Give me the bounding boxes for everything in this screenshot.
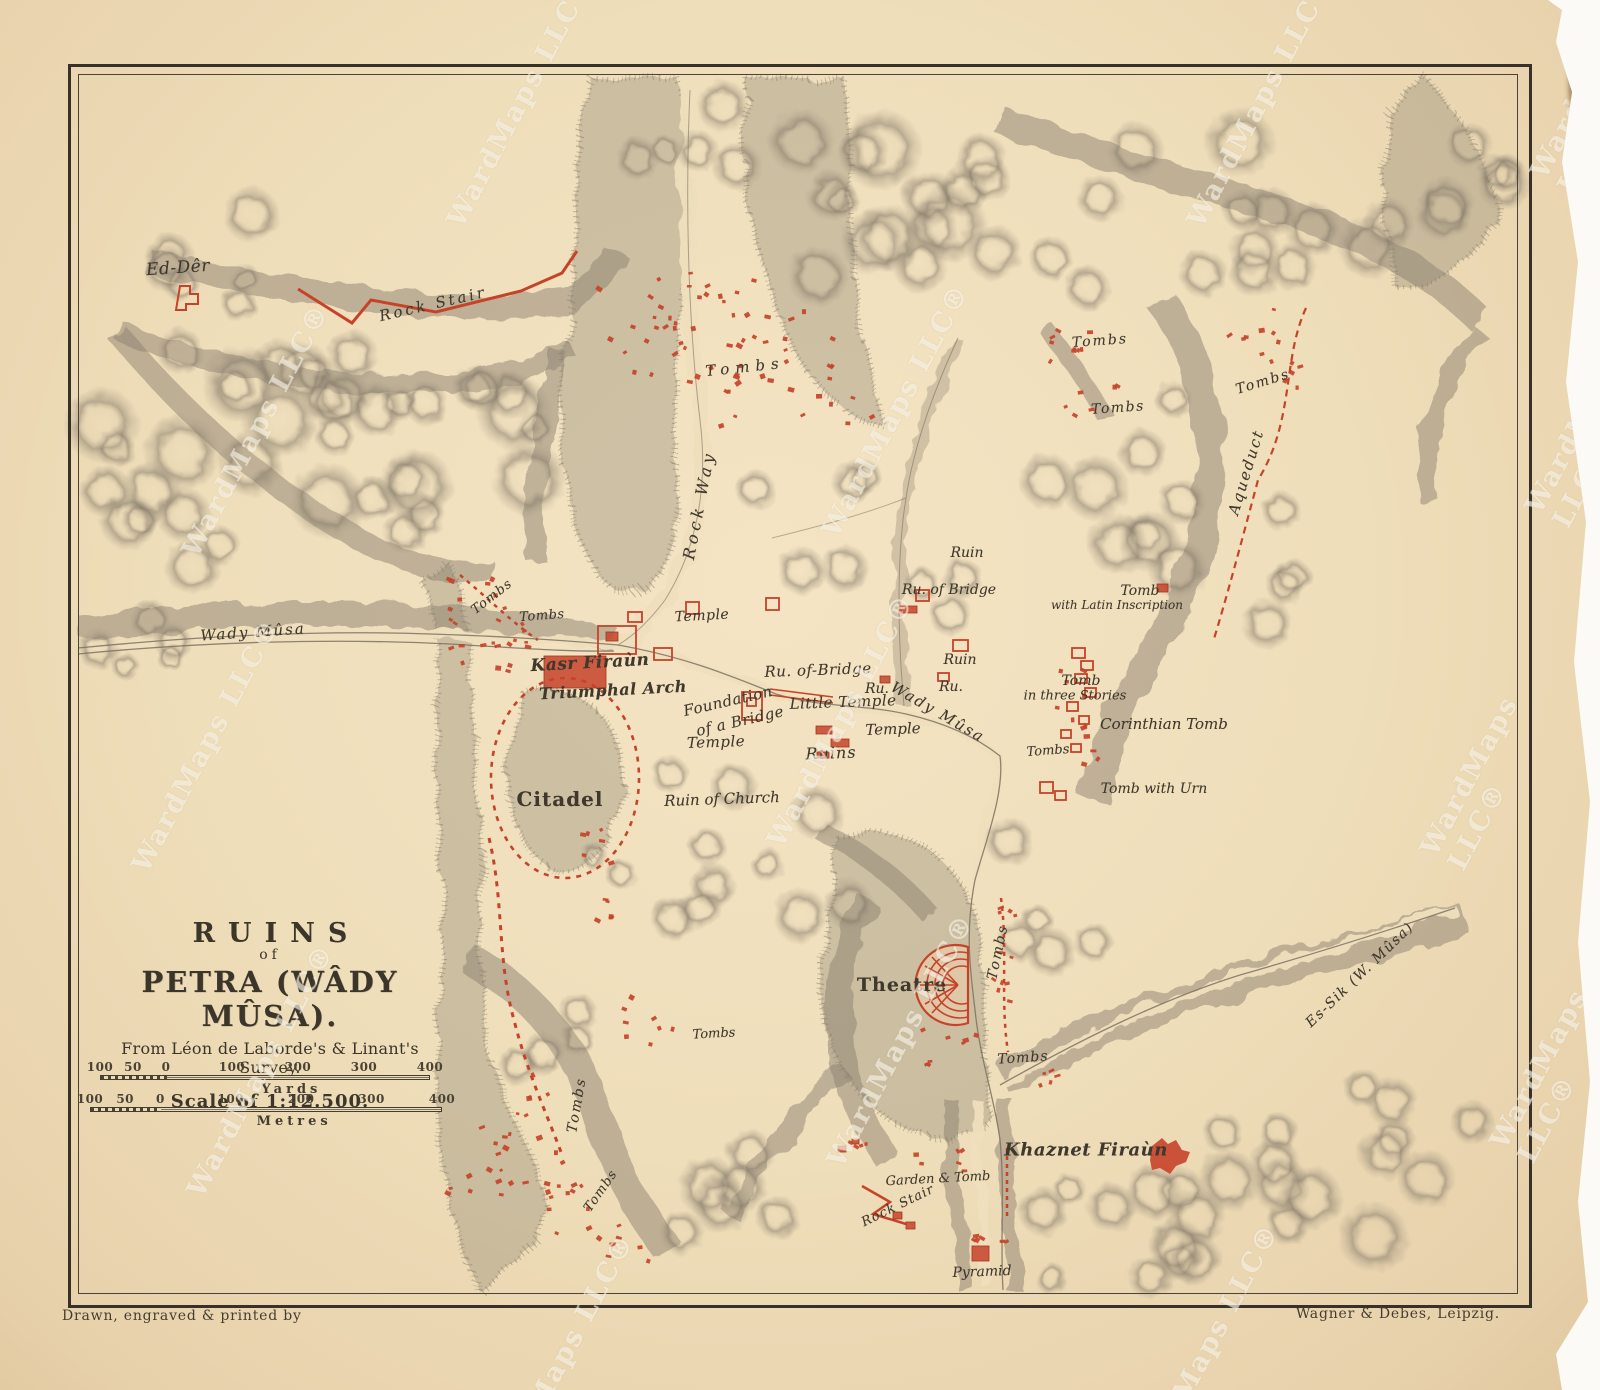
- map-label: in three Stories: [1024, 689, 1127, 704]
- scale-tick: 200: [285, 1060, 312, 1074]
- hill-rosette: [77, 628, 120, 671]
- tomb-dot: [1013, 914, 1017, 918]
- scale-tick: 50: [124, 1060, 142, 1074]
- hill-rosette: [1259, 1112, 1299, 1152]
- tomb-dot: [1083, 734, 1090, 739]
- scale-tick: 0: [156, 1092, 165, 1106]
- hill-rosette: [1159, 478, 1207, 526]
- tomb-dot: [816, 394, 822, 399]
- scale-tick: 0: [162, 1060, 171, 1074]
- tomb-dot: [524, 1113, 529, 1118]
- map-label: Ru.: [939, 679, 963, 695]
- tomb-dot: [492, 641, 495, 644]
- tomb-dot: [959, 1148, 965, 1154]
- hill-rosette: [1204, 107, 1275, 178]
- hill-rosette: [837, 127, 890, 180]
- hill-rosette: [776, 546, 827, 597]
- hill-rosette: [212, 364, 256, 408]
- scale-tick: 100: [77, 1092, 104, 1106]
- hill-rosette: [1357, 1126, 1412, 1181]
- ruin-footprint: [606, 632, 618, 641]
- map-label: Tombs: [519, 607, 565, 625]
- hill-rosette: [696, 80, 750, 134]
- tomb-dot: [507, 663, 513, 668]
- tomb-dot: [1226, 332, 1233, 338]
- tomb-dot: [536, 1134, 544, 1141]
- tomb-dot: [628, 994, 635, 1001]
- tomb-dot: [621, 1006, 627, 1011]
- tomb-dot: [767, 378, 774, 383]
- tomb-dot: [1297, 364, 1303, 369]
- hill-rosette: [1035, 1262, 1069, 1296]
- tomb-dot: [744, 312, 751, 319]
- tomb-dot: [457, 597, 462, 601]
- scale-tick: 100: [218, 1092, 245, 1106]
- tomb-dot: [703, 291, 709, 297]
- hill-rosette: [1155, 381, 1193, 419]
- tomb-dot: [1007, 999, 1013, 1003]
- scale-tick: 50: [116, 1092, 134, 1106]
- hill-rosette: [95, 426, 136, 467]
- tomb-dot: [1063, 405, 1068, 409]
- scale-tick: 300: [358, 1092, 385, 1106]
- tomb-dot: [1259, 352, 1264, 356]
- scale-ticks-metres: 100500100200300400: [90, 1092, 442, 1104]
- ruin-footprint: [1079, 716, 1089, 724]
- map-page: Ed-DêrRock StairTombsRock WayTombsTombsT…: [0, 0, 1600, 1390]
- tomb-dot: [674, 321, 678, 325]
- map-title-of: of: [90, 947, 450, 963]
- hill-rosette: [1241, 597, 1294, 650]
- tomb-dot: [1289, 360, 1294, 365]
- ruin-footprint: [1061, 730, 1071, 738]
- hill-rosette: [822, 181, 859, 218]
- tomb-dot: [718, 423, 725, 429]
- tomb-dot: [829, 402, 833, 407]
- tomb-dot: [735, 291, 740, 295]
- hill-rosette: [1222, 189, 1264, 231]
- tomb-dot: [637, 1245, 642, 1249]
- tomb-dot: [996, 988, 1000, 993]
- tomb-dot: [763, 340, 769, 344]
- map-label: Pyramid: [952, 1263, 1012, 1281]
- tomb-dot: [506, 641, 512, 647]
- hill-rosette: [660, 1211, 705, 1256]
- tomb-dot: [673, 326, 677, 331]
- tomb-dot: [1241, 337, 1246, 341]
- hill-rosette: [767, 108, 835, 176]
- tomb-dot: [733, 414, 738, 418]
- hill-rosette: [847, 459, 883, 495]
- hill-rosette: [1025, 926, 1076, 977]
- credit-publisher: Wagner & Debes, Leipzig.: [1296, 1306, 1500, 1322]
- tomb-dot: [913, 1152, 919, 1156]
- tomb-dot: [609, 914, 614, 919]
- tomb-dot: [651, 1016, 657, 1022]
- ruin-footprint: [953, 640, 968, 651]
- tomb-dot: [609, 1241, 616, 1247]
- tomb-dot: [1295, 385, 1298, 389]
- hill-rosette: [823, 879, 874, 930]
- tomb-dot: [726, 343, 733, 348]
- tomb-dot: [668, 316, 671, 321]
- tomb-dot: [632, 370, 637, 375]
- tomb-dot: [670, 1026, 675, 1032]
- map-label: Ruins: [805, 743, 857, 764]
- tomb-dot: [554, 1150, 558, 1155]
- ruin-footprint: [852, 1139, 859, 1144]
- tomb-dot: [549, 1195, 554, 1199]
- map-label: Corinthian Tomb: [1100, 715, 1228, 733]
- tomb-dot: [502, 1135, 508, 1139]
- map-label: Tomb: [1062, 673, 1101, 689]
- hill-rosette: [787, 245, 850, 308]
- tomb-dot: [502, 606, 507, 610]
- scale-bar-metres: 100500100200300400 Metres: [90, 1092, 442, 1122]
- tomb-dot: [718, 293, 723, 299]
- hill-rosette: [1018, 452, 1076, 510]
- map-label: Citadel: [516, 787, 603, 811]
- tomb-dot: [704, 283, 710, 288]
- tomb-dot: [853, 1144, 859, 1150]
- hill-rosette: [1076, 174, 1124, 222]
- map-label: Ru. of-Bridge: [764, 659, 872, 681]
- tomb-dot: [1271, 330, 1276, 335]
- map-label: Temple: [674, 607, 729, 626]
- map-label: Ru. of Bridge: [902, 582, 996, 598]
- tomb-dot: [1055, 706, 1060, 710]
- tomb-dot: [459, 644, 465, 647]
- tomb-dot: [605, 900, 610, 904]
- tomb-dot: [783, 348, 788, 352]
- ruin-footprint: [816, 726, 832, 734]
- tomb-dot: [566, 1191, 570, 1195]
- map-title: RUINS: [90, 918, 450, 949]
- tomb-dot: [782, 336, 787, 341]
- tomb-dot: [1038, 1083, 1043, 1088]
- tomb-dot: [741, 338, 746, 343]
- tomb-dot: [734, 379, 742, 386]
- ruin-footprint: [899, 606, 917, 613]
- hill-rosette: [1202, 1111, 1244, 1153]
- tomb-dot: [653, 316, 657, 320]
- hill-rosette: [121, 501, 159, 539]
- hill-rosette: [1064, 264, 1111, 311]
- tomb-dot: [802, 309, 806, 314]
- tomb-dot: [505, 669, 511, 674]
- ruin-footprint: [1072, 648, 1085, 658]
- tomb-dot: [616, 1223, 621, 1227]
- map-label: Theatre: [857, 974, 947, 996]
- tomb-dot: [697, 295, 702, 299]
- map-label: Temple: [865, 719, 921, 739]
- tomb-dot: [678, 341, 683, 345]
- scale-rule-metres: [90, 1107, 442, 1112]
- scale-bar-yards: 100500100200300400 Yards: [100, 1060, 430, 1090]
- hill-rosette: [1449, 1099, 1495, 1145]
- tomb-dot: [586, 1225, 593, 1231]
- tomb-dot: [623, 1020, 629, 1024]
- hill-rosette: [821, 544, 870, 593]
- hill-rosette: [1366, 1076, 1419, 1129]
- hill-rosette: [1273, 558, 1313, 598]
- scale-ticks-yards: 100500100200300400: [100, 1060, 430, 1072]
- tomb-dot: [735, 342, 743, 349]
- tomb-dot: [1258, 328, 1265, 334]
- hill-rosette: [217, 430, 284, 497]
- hill-rosette: [1417, 176, 1475, 234]
- map-label: Khaznet Firaùn: [1004, 1140, 1168, 1161]
- hill-rosette: [491, 441, 568, 518]
- hill-rosette: [1488, 154, 1528, 194]
- hill-rosette: [456, 364, 505, 413]
- hill-rosette: [163, 538, 221, 596]
- scale-tick: 300: [351, 1060, 378, 1074]
- scale-tick: 400: [417, 1060, 444, 1074]
- tomb-dot: [624, 1034, 629, 1039]
- tomb-dot: [648, 1042, 653, 1047]
- tomb-dot: [752, 334, 757, 339]
- hill-rosette: [962, 153, 1012, 203]
- paper-sheet: Ed-DêrRock StairTombsRock WayTombsTombsT…: [0, 0, 1600, 1390]
- hill-rosette: [750, 847, 785, 882]
- tomb-dot: [646, 1258, 651, 1263]
- hill-rosette: [1178, 249, 1227, 298]
- scale-unit-metres: Metres: [257, 1114, 332, 1129]
- tomb-dot: [732, 313, 736, 318]
- tomb-dot: [596, 1235, 603, 1242]
- tomb-dot: [764, 314, 771, 319]
- hill-rosette: [292, 352, 335, 395]
- tomb-dot: [800, 413, 806, 418]
- hill-rosette: [755, 1195, 800, 1240]
- hill-rosette: [1228, 245, 1281, 298]
- tomb-dot: [1272, 308, 1276, 312]
- tomb-dot: [1054, 1074, 1061, 1078]
- tomb-dot: [928, 1060, 933, 1063]
- tomb-dot: [1000, 1240, 1006, 1243]
- tomb-dot: [594, 917, 601, 924]
- hill-rosette: [1147, 1218, 1206, 1277]
- tomb-dot: [864, 1142, 867, 1146]
- scale-tick: 100: [219, 1060, 246, 1074]
- tomb-dot: [722, 300, 726, 303]
- map-label: Ruin: [950, 545, 983, 561]
- hill-rosette: [222, 186, 280, 244]
- tomb-dot: [547, 1207, 552, 1211]
- tomb-dot: [1090, 749, 1096, 752]
- tomb-dot: [560, 1160, 566, 1166]
- hill-rosette: [615, 136, 660, 181]
- hill-rosette: [156, 327, 204, 375]
- tomb-dot: [526, 1095, 532, 1101]
- tomb-dot: [579, 1184, 584, 1189]
- tomb-dot: [687, 285, 692, 288]
- paper-stain: [1568, 52, 1586, 116]
- map-subtitle: PETRA (WÂDY MÛSA).: [90, 965, 450, 1033]
- tomb-dot: [545, 1092, 550, 1097]
- tomb-dot: [1049, 1080, 1053, 1085]
- map-label: Tombs: [1026, 742, 1070, 760]
- ruin-footprint: [1055, 791, 1066, 800]
- tomb-dot: [570, 1188, 576, 1194]
- ruin-footprint: [1071, 744, 1081, 752]
- hill-rosette: [1018, 1186, 1069, 1237]
- hill-rosette: [1072, 921, 1113, 962]
- hill-rosette: [1337, 216, 1401, 280]
- hill-rosette: [651, 755, 691, 795]
- map-label: Ru.: [865, 681, 889, 697]
- tomb-dot: [545, 1189, 551, 1195]
- tomb-dot: [616, 1236, 623, 1241]
- tomb-dot: [516, 1112, 520, 1115]
- tomb-dot: [544, 1181, 551, 1187]
- scale-tick: 200: [288, 1092, 315, 1106]
- hill-rosette: [1278, 1165, 1344, 1231]
- hill-rosette: [676, 130, 719, 173]
- map-label: Tomb with Urn: [1101, 781, 1207, 797]
- hill-rosette: [1117, 428, 1167, 478]
- hill-rosette: [228, 263, 261, 296]
- credit-engraver: Drawn, engraved & printed by: [62, 1308, 302, 1324]
- scale-rule-yards: [100, 1075, 430, 1080]
- hill-rosette: [498, 1045, 540, 1087]
- tomb-dot: [751, 278, 757, 283]
- hill-rosette: [790, 785, 846, 841]
- tomb-dot: [557, 1184, 561, 1187]
- hill-rosette: [688, 827, 728, 867]
- ruin-footprint: [766, 598, 779, 610]
- ruin-footprint: [906, 1222, 915, 1229]
- ruin-footprint: [838, 1146, 846, 1152]
- hill-rosette: [1107, 121, 1165, 179]
- scale-tick: 400: [429, 1092, 456, 1106]
- hill-rosette: [559, 1022, 594, 1057]
- tomb-dot: [499, 1193, 504, 1197]
- tomb-chain-theatre: [1001, 898, 1008, 1052]
- tomb-dot: [524, 641, 528, 644]
- scale-tick: 100: [87, 1060, 114, 1074]
- tomb-dot: [1276, 339, 1281, 344]
- ruin-footprint: [1040, 782, 1053, 793]
- hill-rosette: [1338, 1201, 1409, 1272]
- map-label: Ruin: [943, 652, 976, 668]
- tomb-dot: [1269, 359, 1274, 364]
- tomb-dot: [1007, 908, 1013, 913]
- hill-rosette: [403, 380, 449, 426]
- tomb-dot: [571, 1182, 578, 1188]
- tomb-dot: [508, 1132, 512, 1136]
- map-label: Tomb: [1121, 583, 1160, 599]
- tomb-dot: [845, 421, 850, 425]
- tomb-dot: [554, 1231, 559, 1236]
- tomb-dot: [657, 1026, 662, 1031]
- hill-rosette: [379, 454, 432, 507]
- map-label: with Latin Inscription: [1051, 598, 1183, 612]
- tomb-dot: [1048, 358, 1053, 364]
- tomb-dot: [998, 910, 1002, 914]
- tomb-dot: [1072, 413, 1078, 419]
- map-label: Tombs: [692, 1025, 736, 1042]
- hill-rosette: [1028, 235, 1074, 281]
- hill-rosette: [676, 886, 721, 931]
- map-label: Temple: [687, 732, 746, 752]
- tomb-dot: [1081, 761, 1088, 767]
- hill-rosette: [772, 887, 829, 944]
- hill-rosette: [1261, 491, 1302, 532]
- ruin-footprint: [972, 1246, 989, 1261]
- tomb-dot: [1071, 717, 1075, 722]
- hill-rosette: [965, 224, 1022, 281]
- hill-rosette: [1125, 1162, 1184, 1221]
- tomb-dot: [495, 665, 501, 671]
- tomb-dot: [919, 1162, 924, 1166]
- hill-rosette: [735, 469, 776, 510]
- tomb-dot: [485, 582, 490, 586]
- tomb-dot: [787, 387, 794, 393]
- tomb-dot: [606, 1254, 612, 1258]
